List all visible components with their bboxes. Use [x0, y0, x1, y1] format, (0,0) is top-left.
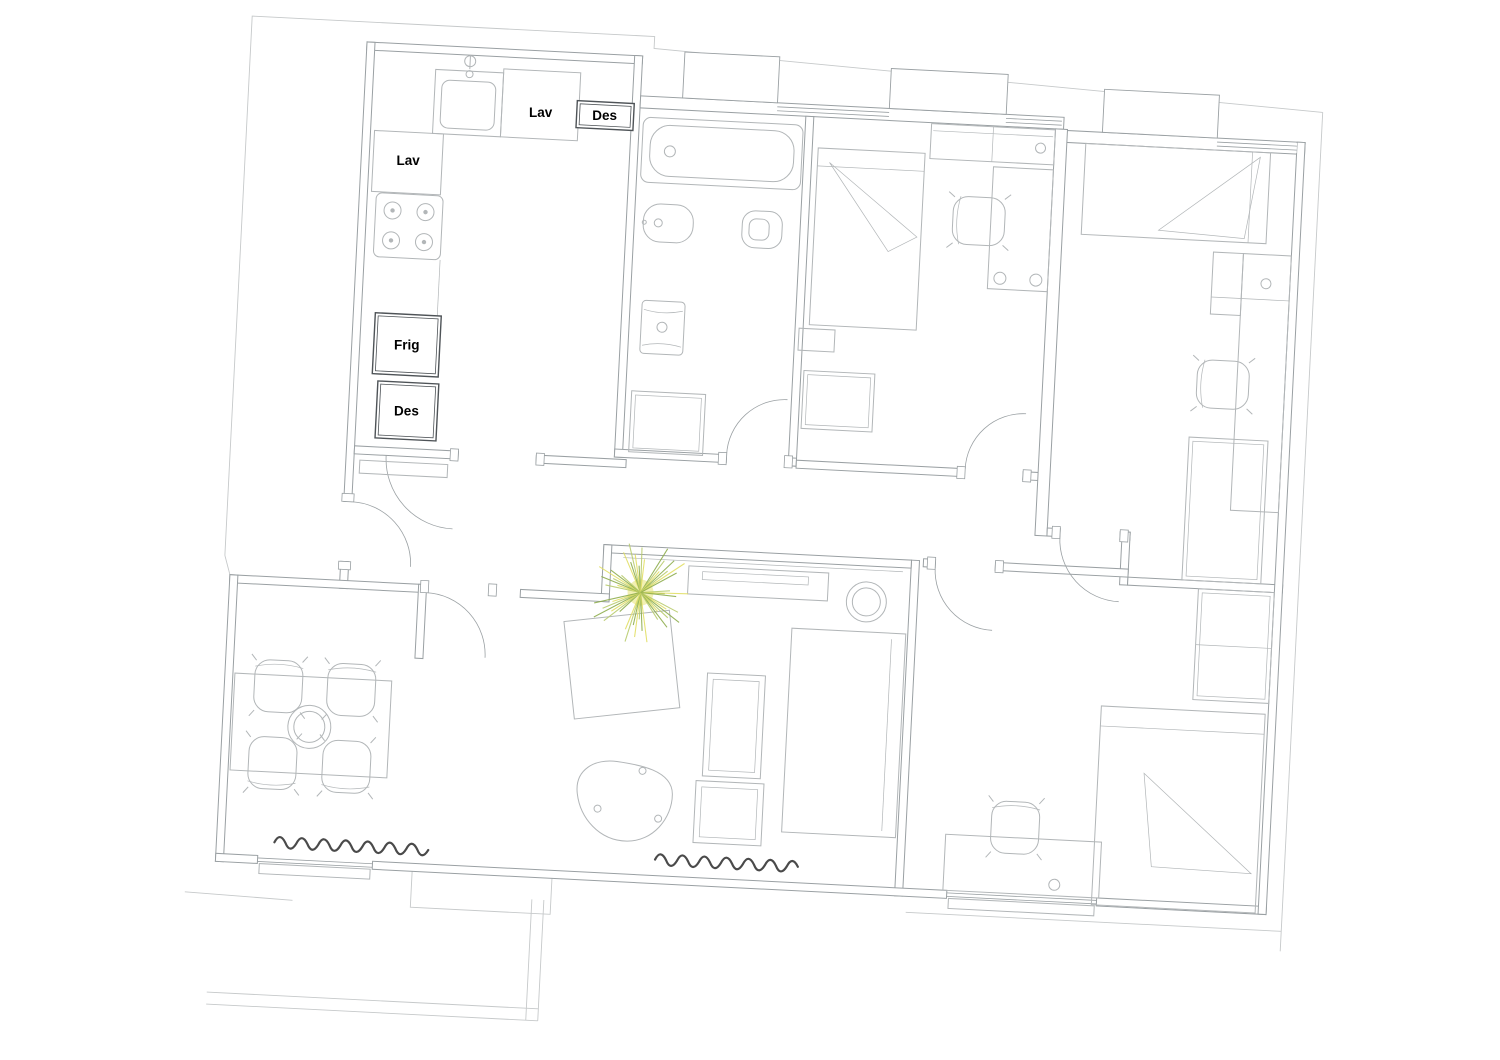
counter-edge: [437, 260, 440, 316]
washbasin-icon: [640, 300, 686, 355]
desk-chair-icon: [946, 192, 1011, 251]
shelf-icon: [930, 124, 1056, 165]
living-dining-room: [226, 524, 909, 879]
bathroom: [627, 117, 804, 460]
fridge-label: Frig: [394, 337, 420, 352]
square-table-icon: [564, 610, 680, 719]
coffee-table-icon: [702, 673, 765, 779]
round-stool-icon: [845, 581, 887, 623]
kitchen-sink-icon: [432, 53, 504, 136]
wardrobe-icon: [1182, 437, 1268, 584]
wardrobe-icon: [1193, 589, 1275, 704]
door-swings: [334, 377, 1134, 689]
windows: [257, 79, 1298, 924]
bathtub-icon: [640, 117, 803, 190]
door-swing-icon: [383, 455, 456, 528]
washer-top-label: Lav: [529, 105, 553, 120]
door-swing-icon: [727, 397, 788, 458]
curtain-icon: [655, 854, 798, 872]
shelf-icon: [1210, 252, 1291, 318]
bathroom-cabinet-icon: [629, 391, 706, 456]
desk-chair-icon: [986, 795, 1045, 860]
door-swing-icon: [932, 567, 995, 630]
bedroom-3: [943, 577, 1275, 914]
labels: Lav Des Lav Frig Des: [383, 97, 618, 429]
bed-icon: [809, 148, 925, 330]
bidet-icon: [641, 203, 694, 244]
coffee-table-icon: [693, 781, 764, 846]
desk-chair-icon: [1190, 355, 1255, 414]
door-swing-icon: [423, 593, 488, 658]
dining-chair-icon: [317, 734, 376, 799]
radiator: [359, 460, 448, 477]
door-jambs: [337, 433, 1131, 628]
plan-rotated-group: Lav Des Lav Frig Des: [179, 15, 1325, 1058]
door-swing-icon: [965, 411, 1026, 472]
bedroom-1: [794, 117, 1055, 440]
sofa-icon: [782, 628, 906, 838]
wardrobe-icon: [801, 370, 875, 432]
door-swing-icon: [349, 502, 414, 567]
desk-icon: [987, 167, 1053, 292]
toilet-icon: [741, 210, 783, 249]
dishwasher-top-label: Des: [592, 108, 617, 123]
floor-plan-canvas: Lav Des Lav Frig Des: [0, 0, 1500, 1060]
floor-plan: Lav Des Lav Frig Des: [0, 0, 1500, 1060]
organic-side-table-icon: [574, 759, 673, 843]
washer-left-label: Lav: [396, 153, 420, 168]
curtain-icon: [274, 837, 428, 856]
walls: [215, 30, 1308, 914]
bed-icon: [1091, 706, 1265, 913]
bed-icon: [1081, 143, 1270, 243]
dining-chair-icon: [322, 658, 381, 723]
dining-chair-icon: [249, 654, 308, 719]
pantry-label: Des: [394, 403, 419, 418]
desk-icon: [943, 834, 1102, 898]
stove-icon: [373, 193, 443, 260]
bedroom-2: [1064, 143, 1297, 584]
window-icon: [257, 858, 373, 879]
nightstand-icon: [798, 328, 835, 352]
